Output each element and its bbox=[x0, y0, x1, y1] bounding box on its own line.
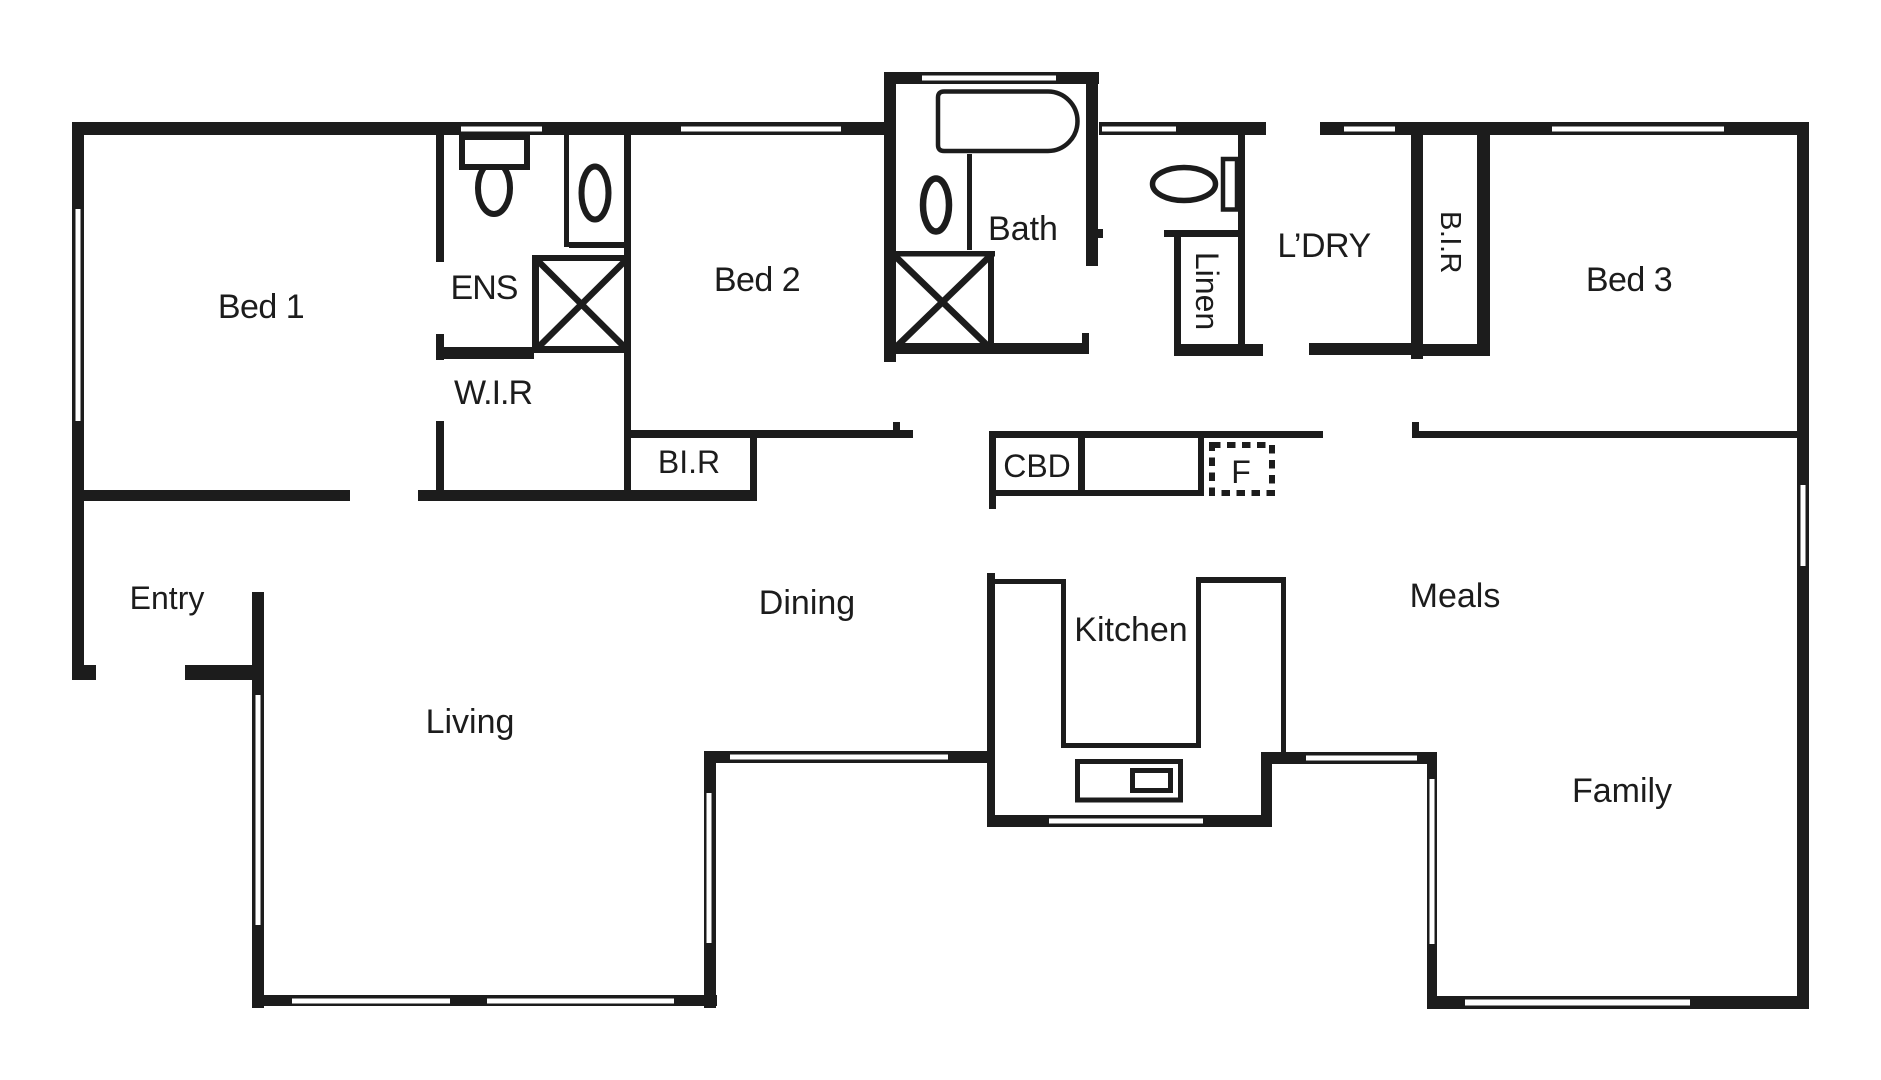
svg-text:Bed 3: Bed 3 bbox=[1586, 261, 1672, 299]
svg-text:BI.R: BI.R bbox=[658, 444, 720, 480]
svg-text:F: F bbox=[1231, 454, 1251, 490]
svg-text:Entry: Entry bbox=[130, 580, 205, 616]
svg-text:Dining: Dining bbox=[759, 584, 855, 622]
svg-text:Family: Family bbox=[1572, 772, 1672, 810]
svg-text:B.I.R: B.I.R bbox=[1434, 211, 1466, 273]
svg-text:Kitchen: Kitchen bbox=[1074, 611, 1187, 649]
svg-text:Living: Living bbox=[426, 703, 515, 741]
svg-text:L’DRY: L’DRY bbox=[1277, 227, 1370, 265]
svg-text:Bed 1: Bed 1 bbox=[218, 288, 304, 326]
svg-text:Bath: Bath bbox=[988, 210, 1058, 248]
svg-text:Meals: Meals bbox=[1410, 577, 1501, 615]
svg-text:CBD: CBD bbox=[1003, 448, 1071, 484]
svg-text:Linen: Linen bbox=[1189, 252, 1225, 330]
svg-text:W.I.R: W.I.R bbox=[454, 374, 532, 412]
svg-text:Bed 2: Bed 2 bbox=[714, 261, 800, 299]
svg-text:ENS: ENS bbox=[451, 269, 518, 307]
